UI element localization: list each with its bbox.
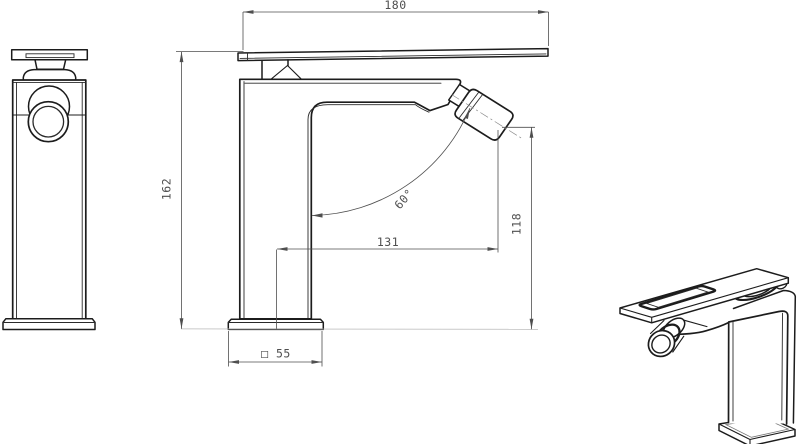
arrowhead [180, 52, 184, 63]
handle-wedge [272, 66, 302, 79]
arrowhead [312, 360, 323, 364]
faucet-body-side [240, 79, 461, 318]
arrowhead [243, 10, 254, 14]
spout-underside-inner [308, 105, 429, 319]
dim-spout-outlet-height: 118 [502, 127, 535, 329]
aerator-outlet-front [28, 102, 68, 142]
arrowhead [488, 247, 499, 251]
dim-base-square: □ 55 [229, 331, 323, 367]
spout-3d-edge [684, 320, 707, 326]
front-view [3, 50, 95, 330]
arrowhead [530, 319, 534, 330]
dim-label-spout-outlet-height: 118 [510, 213, 524, 235]
dim-label-overall-height: 162 [160, 178, 174, 200]
arrowhead [180, 318, 184, 329]
dim-spout-angle: 60° [312, 108, 470, 218]
arrowhead [530, 127, 534, 138]
dim-label-spout-angle: 60° [391, 186, 416, 212]
dim-overall-height: 162 [160, 52, 244, 329]
arrowhead [312, 213, 323, 217]
column-3d-fill [729, 291, 796, 424]
handle-plate-front [12, 50, 88, 60]
handle-stem-front [35, 60, 66, 70]
perspective-view [620, 269, 795, 444]
cartridge-dome-front [23, 70, 75, 80]
base-plate-front [3, 319, 95, 330]
drawing-sheet: 180 162 131 118 60° [0, 0, 800, 444]
dim-label-spout-reach: 131 [377, 235, 399, 249]
base-plate-side [228, 319, 323, 329]
dim-label-base-square: □ 55 [261, 347, 291, 361]
arrowhead [538, 10, 549, 14]
arrowhead [229, 360, 240, 364]
dim-label-overall-width: 180 [384, 0, 406, 12]
technical-drawing: 180 162 131 118 60° [0, 0, 800, 444]
dim-overall-width: 180 [243, 0, 549, 50]
